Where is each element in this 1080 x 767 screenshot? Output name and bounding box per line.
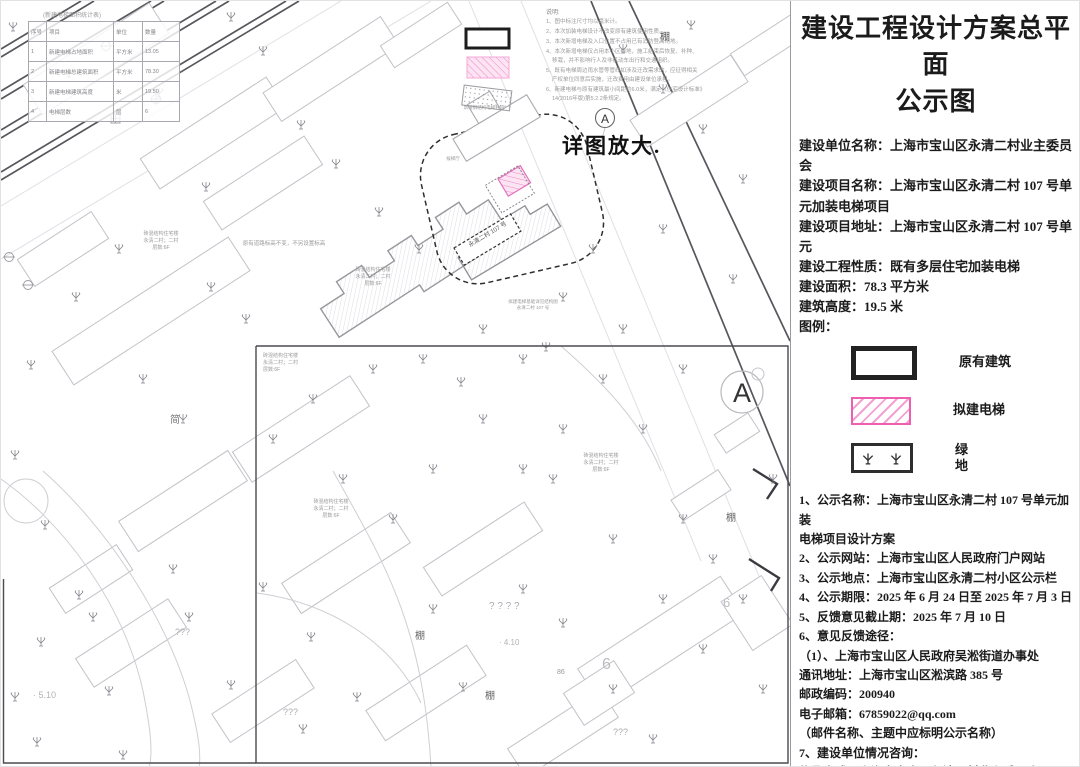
building-outline: [119, 451, 248, 552]
tree-icon: [519, 464, 527, 473]
tree-icon: [659, 224, 667, 233]
project-info-line-2: 建设项目地址：上海市宝山区永清二村 107 号单元: [799, 217, 1073, 257]
wall-marks: [749, 469, 779, 591]
notice-line-0: 1、公示名称：上海市宝山区永清二村 107 号单元加装: [799, 491, 1073, 530]
notice-line-3: 3、公示地点：上海市宝山区永清二村小区公示栏: [799, 569, 1073, 588]
plan-legend-swatches: [462, 29, 512, 111]
site-plan: 说明:1、图中标注尺寸均以毫米计。2、本次加装电梯设计不改变原有建筑使用性质。3…: [1, 1, 791, 767]
notice-line-13: 信函方式：上海市宝山区永清二村业主委员会: [799, 763, 1073, 767]
tree-icon: [860, 451, 876, 465]
tree-icon: [479, 324, 487, 333]
building-outline: [212, 660, 314, 743]
page-title-line2: 公示图: [799, 84, 1073, 120]
notice-list: 1、公示名称：上海市宝山区永清二村 107 号单元加装电梯项目设计方案2、公示网…: [799, 491, 1073, 767]
notice-line-8: 通讯地址：上海市宝山区淞滨路 385 号: [799, 666, 1073, 685]
notice-line-6: 6、意见反馈途径：: [799, 627, 1073, 646]
tree-icon: [169, 564, 177, 573]
tree-icon: [549, 474, 557, 483]
notice-line-1: 电梯项目设计方案: [799, 530, 1073, 549]
tree-icon: [115, 244, 123, 253]
tree-icon: [11, 692, 19, 701]
legend-swatch-proposed-elevator: [851, 397, 911, 425]
notice-line-4: 4、公示期限：2025 年 6 月 24 日至 2025 年 7 月 3 日: [799, 588, 1073, 607]
plan-quantities-table: 序号项目单位数量1新建电梯占地面积平方米13.052新建电梯总建筑面积平方米78…: [28, 21, 180, 122]
tree-icon: [259, 46, 267, 55]
legend: 原有建筑拟建电梯绿 地: [851, 346, 1073, 475]
tree-icon: [339, 474, 347, 483]
building-outline: [52, 237, 250, 385]
tree-icon: [419, 354, 427, 363]
detail-blowup: [442, 76, 615, 280]
plan-table-title: (新建电梯面积统计表): [43, 12, 101, 20]
project-info: 建设单位名称：上海市宝山区永清二村业主委员会建设项目名称：上海市宝山区永清二村 …: [799, 136, 1073, 337]
tree-icon: [699, 644, 707, 653]
tree-icon: [375, 207, 383, 216]
building-outline: [17, 212, 108, 287]
tree-icon: [659, 84, 667, 93]
tree-icon: [119, 750, 127, 759]
table-header-row: 序号项目单位数量: [29, 22, 180, 42]
building-outline: [232, 376, 369, 482]
tree-icon: [888, 451, 904, 465]
notice-line-7: （1）、上海市宝山区人民政府吴淞街道办事处: [799, 647, 1073, 666]
plan-swatch-existing: [466, 29, 509, 48]
building-outline: [730, 10, 790, 75]
tree-icon: [259, 582, 267, 591]
legend-row-proposed-elevator: 拟建电梯: [851, 397, 1073, 425]
tree-icon: [457, 377, 465, 386]
tree-icon: [709, 554, 717, 563]
building-outline: [630, 55, 748, 147]
project-info-line-3: 建设工程性质：既有多层住宅加装电梯: [799, 257, 1073, 277]
building-outline: [76, 599, 187, 687]
building-outline: [203, 136, 322, 230]
building-outline: [671, 470, 731, 521]
tree-icon: [11, 450, 19, 459]
tree-icon: [479, 414, 487, 423]
table-row-2: 3新建电梯建筑高度米19.50: [29, 82, 180, 102]
tree-icon: [687, 20, 695, 29]
tree-icon: [729, 274, 737, 283]
legend-row-green-space: 绿 地: [851, 442, 1073, 475]
tree-icon: [227, 680, 235, 689]
tree-icon: [299, 724, 307, 733]
notice-line-2: 2、公示网站：上海市宝山区人民政府门户网站: [799, 549, 1073, 568]
tree-icon: [227, 12, 235, 21]
tree-icon: [699, 124, 707, 133]
notice-line-11: （邮件名称、主题中应标明公示名称）: [799, 724, 1073, 743]
table-row-1: 2新建电梯总建筑面积平方米78.30: [29, 62, 180, 82]
tree-icon: [609, 534, 617, 543]
tree-icon: [369, 364, 377, 373]
tree-icon: [649, 734, 657, 743]
tree-icon: [179, 414, 187, 423]
project-info-line-6: 图例：: [799, 317, 1073, 337]
tree-icon: [242, 314, 250, 323]
page-title-line1: 建设工程设计方案总平面: [799, 11, 1073, 84]
legend-label-existing-building: 原有建筑: [959, 354, 1011, 370]
building-outline: [263, 17, 399, 122]
project-info-line-1: 建设项目名称：上海市宝山区永清二村 107 号单元加装电梯项目: [799, 176, 1073, 216]
proposed-elevator-footprint: [498, 166, 531, 197]
tree-icon: [659, 594, 667, 603]
legend-label-proposed-elevator: 拟建电梯: [953, 402, 1005, 418]
tree-icon: [105, 686, 113, 695]
tree-icon: [72, 292, 80, 301]
project-info-line-0: 建设单位名称：上海市宝山区永清二村业主委员会: [799, 136, 1073, 176]
tree-icon: [619, 324, 627, 333]
legend-row-existing-building: 原有建筑: [851, 346, 1073, 380]
page-title: 建设工程设计方案总平面 公示图: [799, 11, 1073, 120]
notice-sheet: 说明:1、图中标注尺寸均以毫米计。2、本次加装电梯设计不改变原有建筑使用性质。3…: [0, 0, 1080, 767]
building-outline: [49, 545, 132, 614]
tree-icon: [559, 618, 567, 627]
legend-swatch-existing-building: [851, 346, 917, 380]
tree-icon: [89, 612, 97, 621]
tree-icon: [759, 684, 767, 693]
project-info-line-5: 建筑高度：19.5 米: [799, 297, 1073, 317]
notice-line-9: 邮政编码：200940: [799, 685, 1073, 704]
table-row-0: 1新建电梯占地面积平方米13.05: [29, 42, 180, 62]
tree-icon: [519, 584, 527, 593]
tree-icon: [202, 182, 210, 191]
tree-icon: [679, 364, 687, 373]
legend-swatch-green-space: [851, 443, 913, 473]
tree-icon: [41, 520, 49, 529]
tree-icon: [559, 424, 567, 433]
tree-icon: [139, 374, 147, 383]
tree-icon: [599, 374, 607, 383]
building-outline: [366, 645, 486, 741]
project-info-line-4: 建设面积：78.3 平方米: [799, 277, 1073, 297]
tree-icon: [739, 174, 747, 183]
tree-icon: [519, 354, 527, 363]
table-row-3: 4电梯层数层6: [29, 102, 180, 122]
tree-icon: [307, 632, 315, 641]
building-outline: [714, 413, 760, 453]
info-panel: 建设工程设计方案总平面 公示图 建设单位名称：上海市宝山区永清二村业主委员会建设…: [791, 1, 1080, 767]
tree-icon: [37, 637, 45, 646]
tree-icon: [33, 737, 41, 746]
tree-icon: [332, 159, 340, 168]
tree-icon: [185, 612, 193, 621]
building-outline: [423, 502, 542, 596]
tree-icon: [353, 692, 361, 701]
notice-line-10: 电子邮箱：67859022@qq.com: [799, 705, 1073, 724]
plan-swatch-elevator: [467, 57, 509, 78]
tree-icon: [297, 120, 305, 129]
notice-line-5: 5、反馈意见截止期：2025 年 7 月 10 日: [799, 608, 1073, 627]
tree-icon: [589, 244, 597, 253]
tree-icon: [429, 604, 437, 613]
legend-label-green-space: 绿 地: [955, 442, 968, 475]
section-marker-a-small: [596, 109, 615, 128]
tree-icon: [9, 22, 17, 31]
building-outline: [282, 513, 411, 614]
section-marker-a-large: [721, 368, 764, 413]
building-outline: [721, 576, 790, 651]
tree-icon: [619, 44, 627, 53]
tree-icon: [429, 464, 437, 473]
tree-icon: [559, 292, 567, 301]
tree-icon: [27, 360, 35, 369]
notice-line-12: 7、建设单位情况咨询：: [799, 744, 1073, 763]
